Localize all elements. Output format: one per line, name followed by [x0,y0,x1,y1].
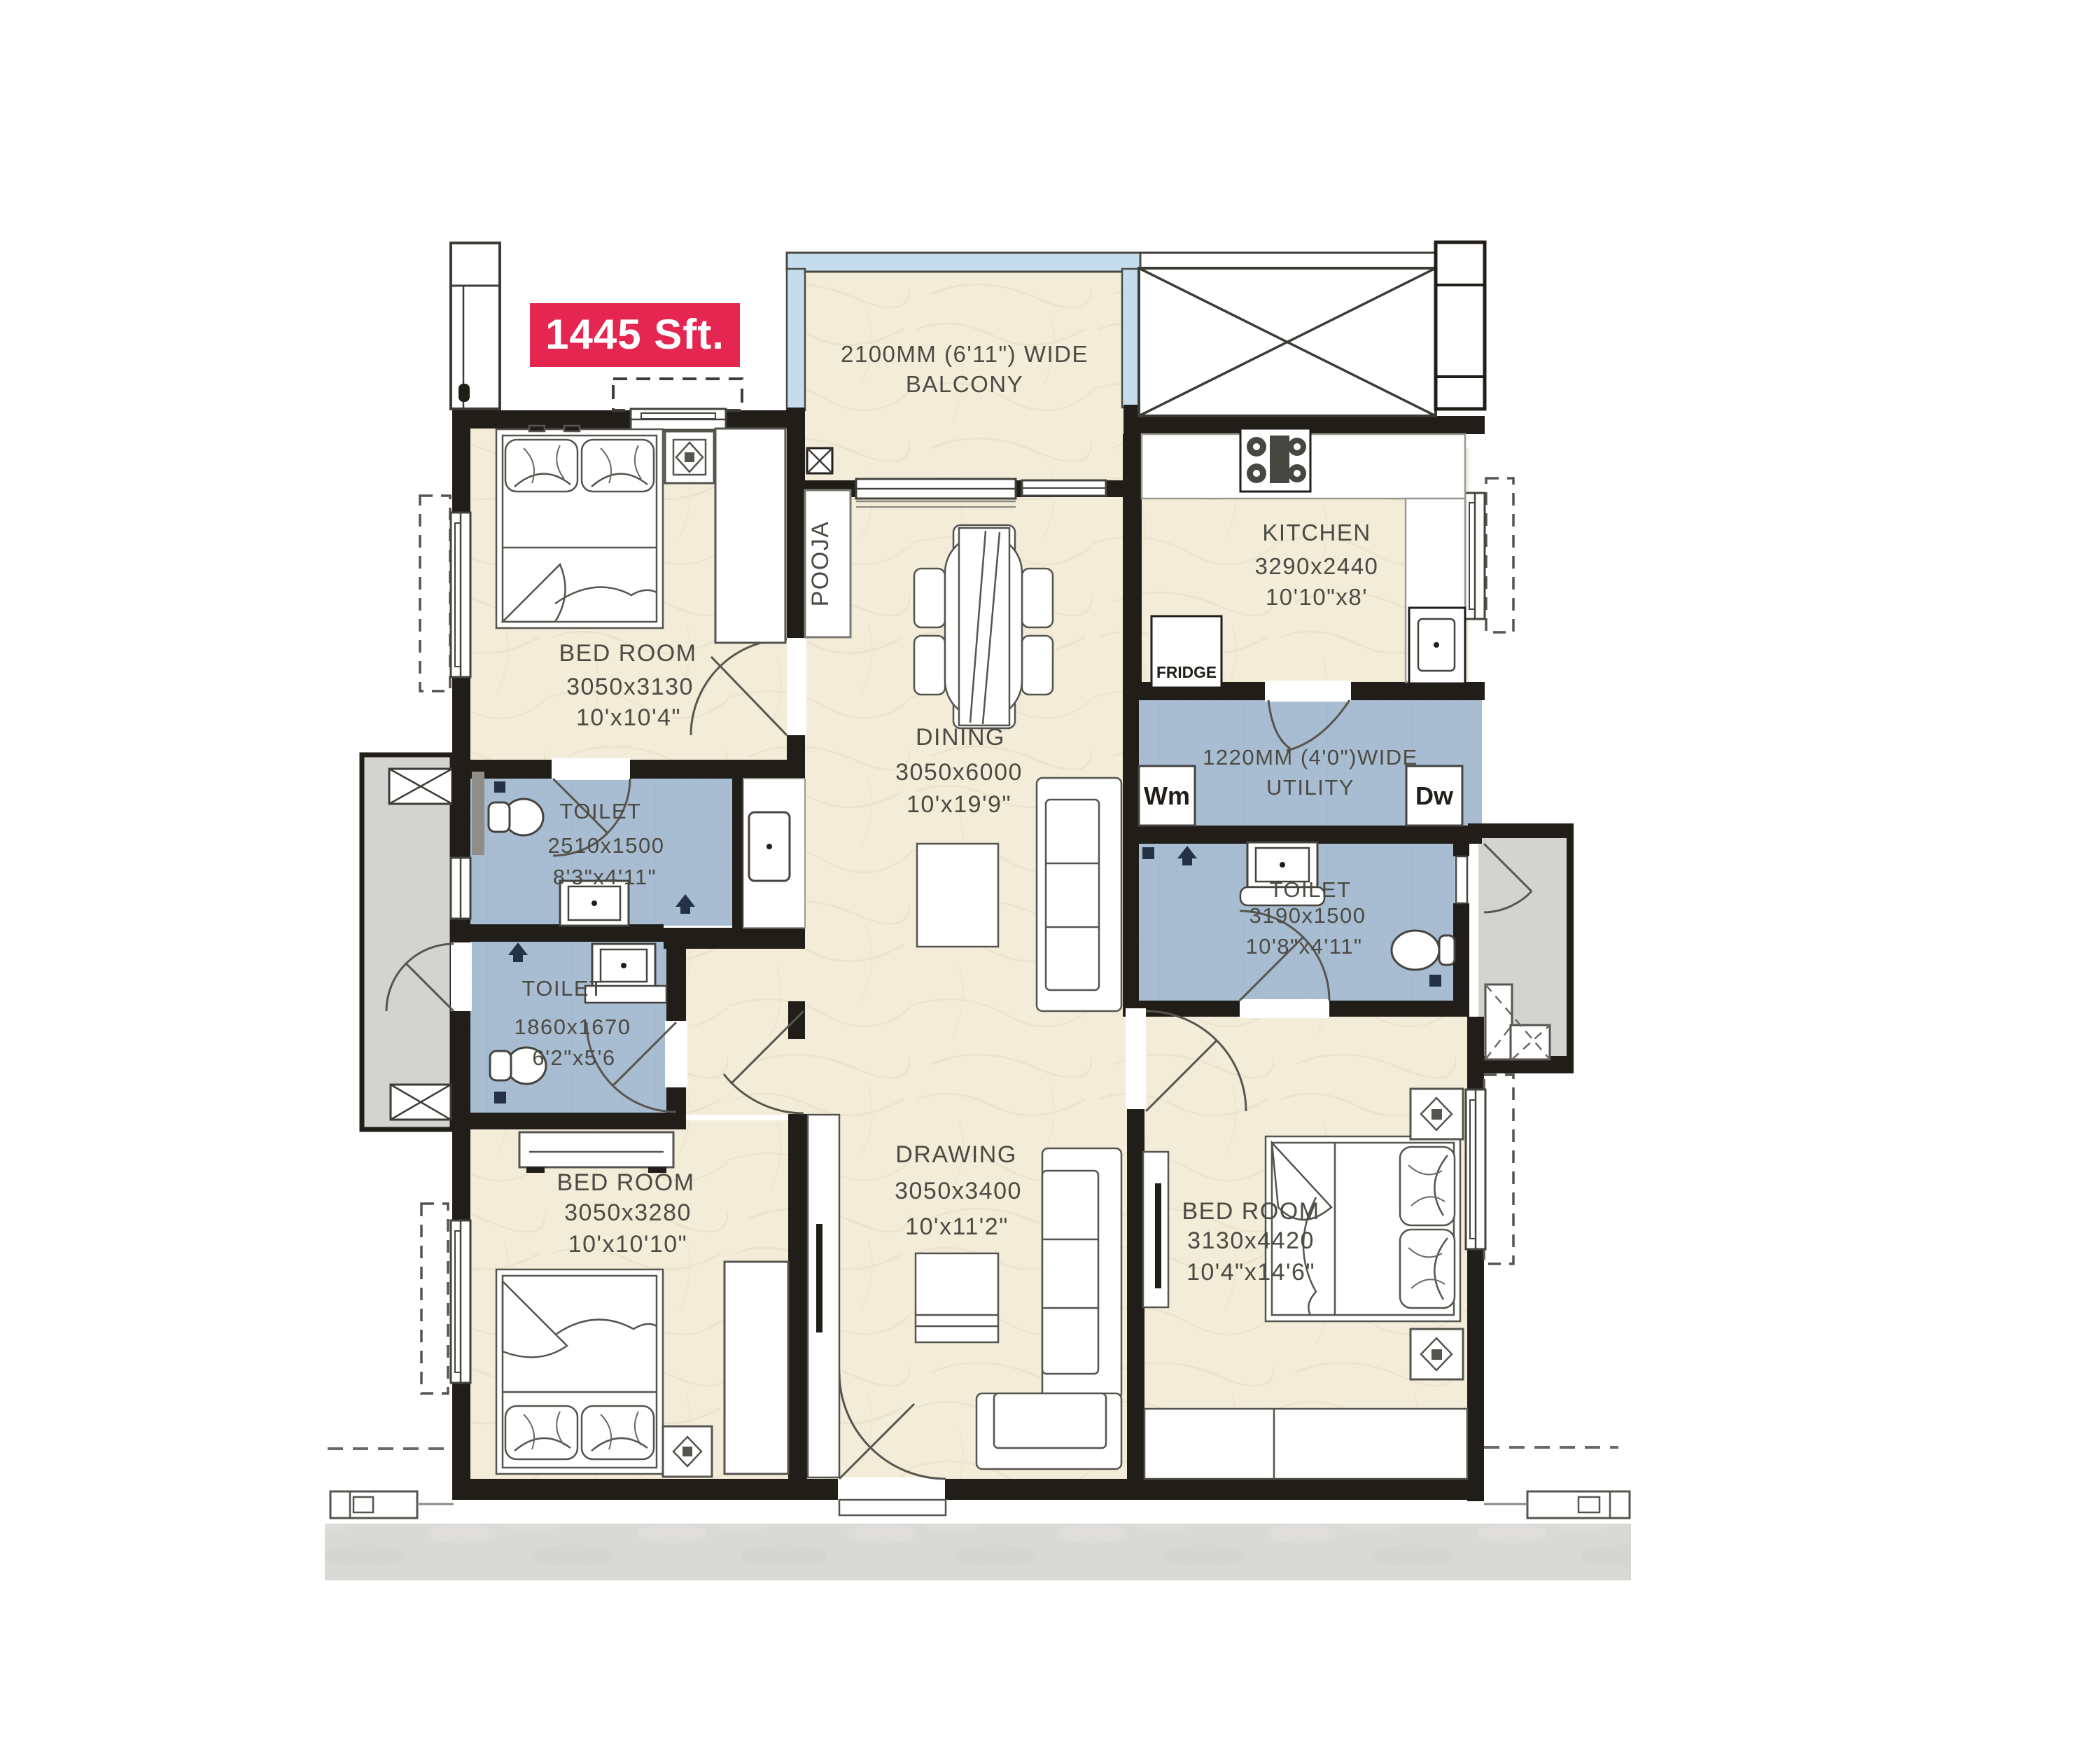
svg-text:BED ROOM: BED ROOM [556,1169,694,1196]
svg-text:TOILET: TOILET [522,976,604,1001]
svg-text:3290x2440: 3290x2440 [1255,553,1379,579]
svg-text:Dw: Dw [1415,781,1454,810]
svg-text:DRAWING: DRAWING [895,1141,1017,1168]
svg-text:10'8"x4'11": 10'8"x4'11" [1246,934,1363,959]
svg-text:BED ROOM: BED ROOM [559,640,696,667]
svg-text:DINING: DINING [916,724,1005,751]
svg-text:FRIDGE: FRIDGE [1156,663,1217,681]
svg-text:3050x6000: 3050x6000 [895,759,1023,786]
svg-text:2100MM (6'11") WIDE: 2100MM (6'11") WIDE [841,341,1088,367]
svg-text:BALCONY: BALCONY [906,371,1023,397]
svg-text:3050x3130: 3050x3130 [566,674,694,700]
svg-text:10'x10'10": 10'x10'10" [568,1231,688,1258]
svg-text:TOILET: TOILET [1270,877,1352,902]
svg-text:1860x1670: 1860x1670 [514,1015,631,1039]
svg-text:10'10"x8': 10'10"x8' [1266,584,1368,610]
svg-text:1220MM (4'0")WIDE: 1220MM (4'0")WIDE [1203,745,1418,770]
svg-text:Wm: Wm [1144,781,1190,810]
svg-text:3050x3280: 3050x3280 [564,1199,692,1226]
svg-text:10'x11'2": 10'x11'2" [905,1213,1009,1240]
svg-text:1445 Sft.: 1445 Sft. [545,311,724,358]
svg-text:8'3"x4'11": 8'3"x4'11" [553,865,657,889]
svg-text:3190x1500: 3190x1500 [1249,903,1366,928]
svg-text:KITCHEN: KITCHEN [1262,520,1371,545]
svg-text:2510x1500: 2510x1500 [548,833,665,858]
svg-text:10'x19'9": 10'x19'9" [906,791,1011,818]
svg-text:TOILET: TOILET [560,799,642,823]
svg-text:6'2"x5'6: 6'2"x5'6 [532,1045,615,1070]
svg-text:3050x3400: 3050x3400 [895,1178,1022,1204]
svg-text:UTILITY: UTILITY [1266,775,1354,800]
svg-text:BED ROOM: BED ROOM [1182,1198,1319,1225]
svg-text:10'4"x14'6": 10'4"x14'6" [1186,1259,1315,1286]
svg-text:3130x4420: 3130x4420 [1187,1227,1315,1254]
svg-text:10'x10'4": 10'x10'4" [576,704,681,731]
svg-text:POOJA: POOJA [807,521,834,607]
